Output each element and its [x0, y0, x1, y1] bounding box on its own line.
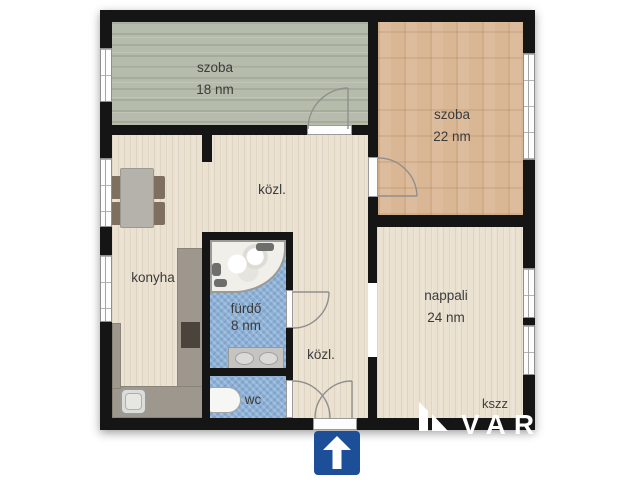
- toilet: [208, 387, 241, 413]
- door-wc: [286, 380, 293, 418]
- wall-stub-hall: [202, 128, 212, 162]
- bathtub-headrest: [256, 243, 274, 251]
- room-name: wc: [245, 392, 262, 407]
- window-left-2: [100, 158, 112, 227]
- door-furdo: [286, 290, 293, 328]
- floor-szoba-18: [112, 22, 368, 125]
- wall-top: [100, 10, 535, 22]
- room-label-wc: wc: [245, 392, 262, 408]
- dining-table: [120, 168, 154, 228]
- wall-bath-top: [202, 232, 293, 240]
- wall-bath-divider: [202, 368, 293, 376]
- room-area: 22 nm: [433, 129, 471, 145]
- room-name: nappali: [424, 288, 468, 303]
- stove: [181, 322, 200, 348]
- room-label-furdo: fürdő 8 nm: [231, 301, 262, 334]
- room-area: 18 nm: [196, 82, 234, 98]
- window-left-3: [100, 255, 112, 322]
- window-left-1: [100, 48, 112, 102]
- room-name: közl.: [307, 347, 335, 362]
- room-area: 8 nm: [231, 318, 262, 334]
- room-label-szoba-22: szoba 22 nm: [433, 107, 471, 145]
- wall-nappali-left-lower: [368, 357, 377, 418]
- up-arrow-icon: [314, 431, 360, 475]
- door-szoba-22: [368, 157, 378, 197]
- room-name: közl.: [258, 182, 286, 197]
- bathtub-headrest: [212, 263, 221, 276]
- room-label-kozl-upper: közl.: [258, 182, 286, 198]
- sink-basin: [259, 352, 278, 365]
- kitchen-counter-left: [112, 323, 121, 389]
- window-right-2: [523, 268, 535, 318]
- door-szoba-18: [307, 125, 352, 135]
- sink-basin: [235, 352, 254, 365]
- watermark-brand: VAR: [461, 409, 542, 441]
- wall-nappali-left-upper: [368, 227, 377, 283]
- double-sink: [228, 347, 284, 369]
- room-label-konyha: konyha: [131, 270, 175, 286]
- entrance-arrow-sign: [314, 431, 360, 475]
- room-name: fürdő: [231, 301, 262, 316]
- room-area: 24 nm: [424, 310, 468, 326]
- wall-szoba22-bottom: [368, 215, 535, 227]
- kitchen-sink-basin: [125, 393, 142, 410]
- room-name: szoba: [434, 107, 470, 122]
- room-label-szoba-18: szoba 18 nm: [196, 60, 234, 98]
- room-label-kozl-lower: közl.: [307, 347, 335, 363]
- kitchen-sink: [120, 388, 147, 415]
- room-label-nappali: nappali 24 nm: [424, 288, 468, 326]
- wall-bath-right-upper: [286, 232, 293, 290]
- bathtub-headrest: [214, 279, 227, 287]
- floor-plan: szoba 18 nm szoba 22 nm közl. konyha für…: [0, 0, 640, 480]
- window-right-3: [523, 325, 535, 375]
- entrance-threshold: [313, 418, 357, 430]
- window-right-1: [523, 53, 535, 160]
- room-name: szoba: [197, 60, 233, 75]
- room-name: konyha: [131, 270, 175, 285]
- wall-bath-left: [202, 232, 210, 418]
